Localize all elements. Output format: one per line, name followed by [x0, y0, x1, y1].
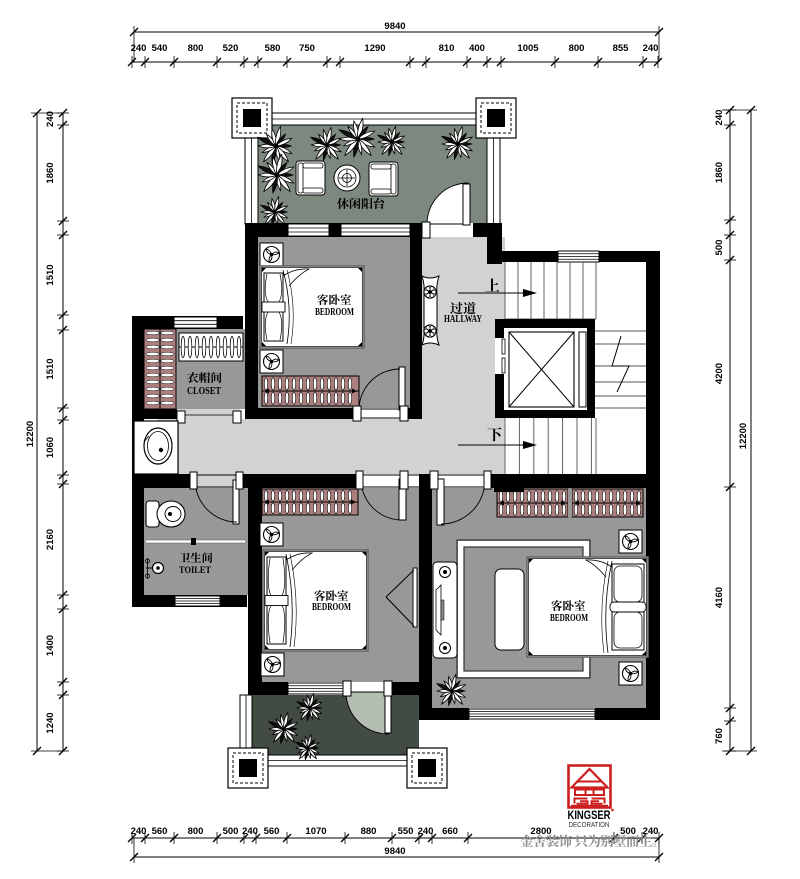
svg-text:1005: 1005 — [517, 43, 539, 54]
svg-text:660: 660 — [442, 826, 458, 837]
svg-text:560: 560 — [264, 826, 280, 837]
svg-text:800: 800 — [569, 43, 585, 54]
svg-text:500: 500 — [223, 826, 239, 837]
svg-text:KINGSER: KINGSER — [568, 808, 611, 822]
svg-text:810: 810 — [439, 43, 455, 54]
svg-text:1510: 1510 — [45, 264, 56, 285]
svg-text:1060: 1060 — [45, 437, 56, 458]
svg-text:12200: 12200 — [25, 421, 36, 447]
svg-text:240: 240 — [131, 826, 147, 837]
svg-text:520: 520 — [223, 43, 239, 54]
svg-text:CLOSET: CLOSET — [187, 386, 221, 397]
svg-text:2800: 2800 — [530, 826, 551, 837]
svg-text:BEDROOM: BEDROOM — [312, 602, 351, 613]
svg-text:500: 500 — [620, 826, 636, 837]
svg-text:BEDROOM: BEDROOM — [550, 613, 588, 624]
svg-text:855: 855 — [613, 43, 630, 54]
svg-text:1400: 1400 — [45, 635, 56, 656]
svg-text:1510: 1510 — [45, 358, 56, 379]
svg-text:240: 240 — [643, 43, 659, 54]
svg-text:560: 560 — [152, 826, 168, 837]
svg-text:4200: 4200 — [714, 363, 725, 384]
svg-text:1240: 1240 — [45, 712, 56, 733]
svg-text:1070: 1070 — [305, 826, 326, 837]
svg-text:760: 760 — [714, 728, 725, 744]
svg-text:12200: 12200 — [738, 423, 749, 449]
svg-text:1860: 1860 — [45, 162, 56, 183]
svg-text:400: 400 — [469, 43, 485, 54]
svg-text:240: 240 — [418, 826, 434, 837]
svg-text:800: 800 — [188, 43, 204, 54]
svg-text:HALLWAY: HALLWAY — [444, 314, 483, 325]
svg-text:550: 550 — [398, 826, 414, 837]
svg-text:540: 540 — [152, 43, 168, 54]
svg-text:2160: 2160 — [45, 529, 56, 550]
svg-text:750: 750 — [299, 43, 315, 54]
svg-text:500: 500 — [714, 240, 725, 256]
svg-text:240: 240 — [45, 111, 56, 127]
svg-text:BEDROOM: BEDROOM — [315, 307, 354, 318]
svg-text:800: 800 — [188, 826, 204, 837]
svg-text:240: 240 — [714, 110, 725, 126]
svg-text:DECORATION: DECORATION — [569, 822, 610, 829]
svg-text:1290: 1290 — [364, 43, 385, 54]
svg-text:580: 580 — [265, 43, 281, 54]
svg-text:4160: 4160 — [714, 587, 725, 608]
svg-text:9840: 9840 — [384, 21, 405, 32]
svg-text:TOILET: TOILET — [179, 566, 212, 576]
svg-text:240: 240 — [131, 43, 147, 54]
svg-text:880: 880 — [361, 826, 377, 837]
svg-text:240: 240 — [242, 826, 258, 837]
svg-text:9840: 9840 — [384, 846, 405, 857]
svg-text:1860: 1860 — [714, 162, 725, 183]
